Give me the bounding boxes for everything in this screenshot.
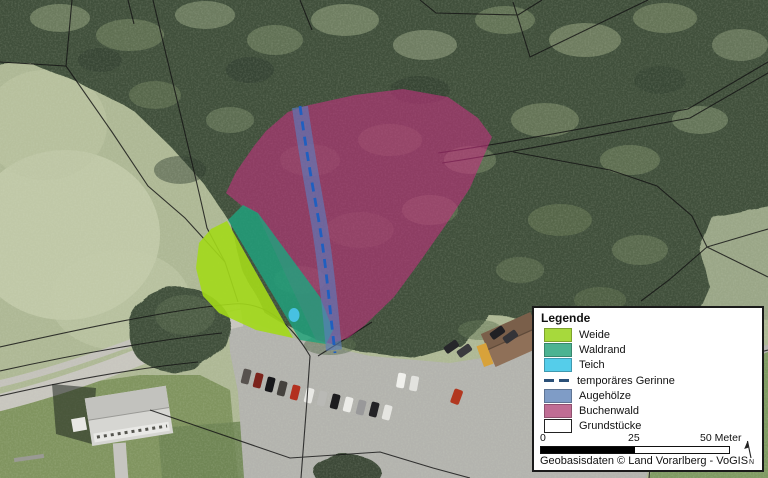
legend-item-label: Teich [579,359,605,371]
legend-title: Legende [541,311,762,325]
legend-item-label: temporäres Gerinne [577,375,675,387]
legend-item-buchenwald: Buchenwald [544,403,762,418]
svg-text:N: N [749,459,754,465]
scale-bar-filled-half [541,447,635,453]
gerinne-dashed-swatch [544,379,570,382]
legend-panel: Legende Weide Waldrand Teich temporäres … [532,306,764,472]
waldrand-swatch [544,343,572,357]
legend-rows: Weide Waldrand Teich temporäres Gerinne … [544,327,762,434]
teich-swatch [544,358,572,372]
scale-tick-end: 50 Meter [700,432,741,444]
legend-item-label: Waldrand [579,344,626,356]
legend-item-label: Buchenwald [579,405,639,417]
legend-item-waldrand: Waldrand [544,342,762,357]
buchenwald-swatch [544,404,572,418]
scale-bar-track [540,446,730,454]
augehoelze-swatch [544,389,572,403]
map-viewport: Legende Weide Waldrand Teich temporäres … [0,0,768,478]
legend-item-label: Weide [579,329,610,341]
legend-item-label: Augehölze [579,390,631,402]
overlay-teich [289,308,300,322]
legend-item-label: Grundstücke [579,420,641,432]
scale-tick-start: 0 [540,432,546,444]
legend-item-augehoelze: Augehölze [544,388,762,403]
legend-item-weide: Weide [544,327,762,342]
north-arrow-icon: N [738,439,758,465]
legend-item-gerinne: temporäres Gerinne [544,373,762,388]
weide-swatch [544,328,572,342]
legend-item-teich: Teich [544,358,762,373]
scale-tick-mid: 25 [628,432,640,444]
attribution-text: Geobasisdaten © Land Vorarlberg - VoGIS [540,455,748,467]
